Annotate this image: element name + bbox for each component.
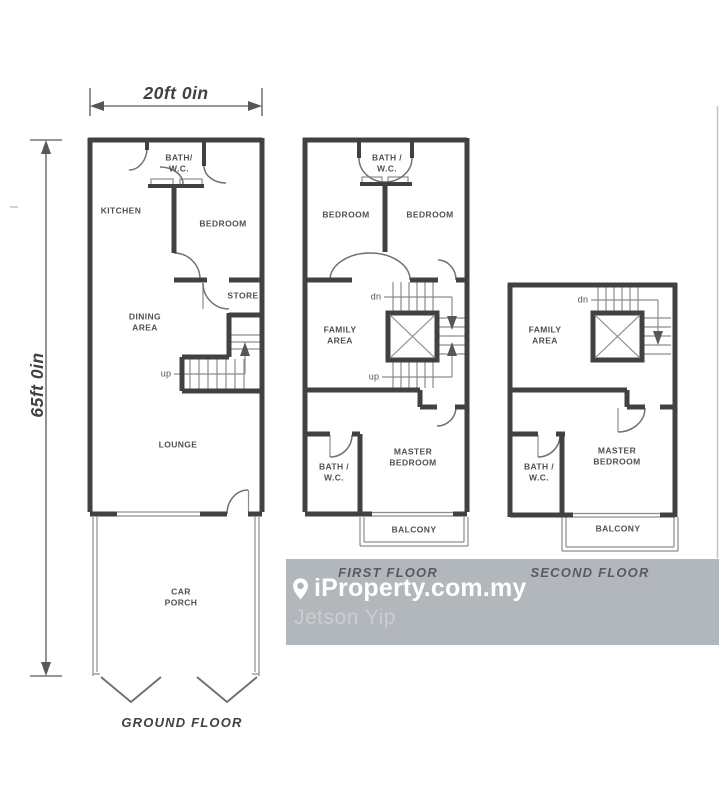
room-label-ff-balcony: BALCONY (392, 525, 437, 536)
room-label-ff-bath-top: BATH / W.C. (372, 152, 402, 173)
stair-label-ff-up: up (369, 371, 379, 382)
stair-label-ff-dn: dn (371, 291, 381, 302)
floor-title-second: SECOND FLOOR (530, 565, 649, 581)
room-label-sf-bath: BATH / W.C. (524, 461, 554, 482)
room-label-gf-bath: BATH/ W.C. (165, 152, 192, 173)
second-floor-plan (508, 283, 678, 551)
room-label-gf-store: STORE (227, 291, 258, 302)
room-label-ff-bedroom-right: BEDROOM (406, 210, 453, 221)
room-label-gf-bedroom: BEDROOM (199, 219, 246, 230)
room-label-ff-master: MASTER BEDROOM (389, 446, 436, 467)
room-label-ff-family: FAMILY AREA (324, 324, 357, 345)
room-label-gf-kitchen: KITCHEN (101, 206, 142, 217)
height-dimension-label: 65ft 0in (27, 352, 49, 417)
room-label-sf-balcony: BALCONY (596, 524, 641, 535)
room-label-gf-car-porch: CAR PORCH (165, 586, 198, 607)
width-dimension-label: 20ft 0in (143, 83, 208, 105)
floor-title-first: FIRST FLOOR (338, 565, 438, 581)
room-label-gf-lounge: LOUNGE (159, 440, 198, 451)
floor-title-ground: GROUND FLOOR (121, 715, 242, 731)
room-label-ff-bath-bottom: BATH / W.C. (319, 461, 349, 482)
room-label-ff-bedroom-left: BEDROOM (322, 210, 369, 221)
room-label-gf-dining: DINING AREA (129, 311, 161, 332)
floorplan-sheet: iProperty.com.my Jetson Yip 20ft 0in 65f… (0, 0, 719, 800)
location-pin-icon (292, 577, 309, 601)
stair-label-sf-dn: dn (578, 294, 588, 305)
floorplan-linework (0, 0, 719, 800)
room-label-sf-family: FAMILY AREA (529, 324, 562, 345)
watermark-agent-name: Jetson Yip (294, 606, 396, 630)
room-label-sf-master: MASTER BEDROOM (593, 445, 640, 466)
stair-label-gf-up: up (161, 368, 171, 379)
